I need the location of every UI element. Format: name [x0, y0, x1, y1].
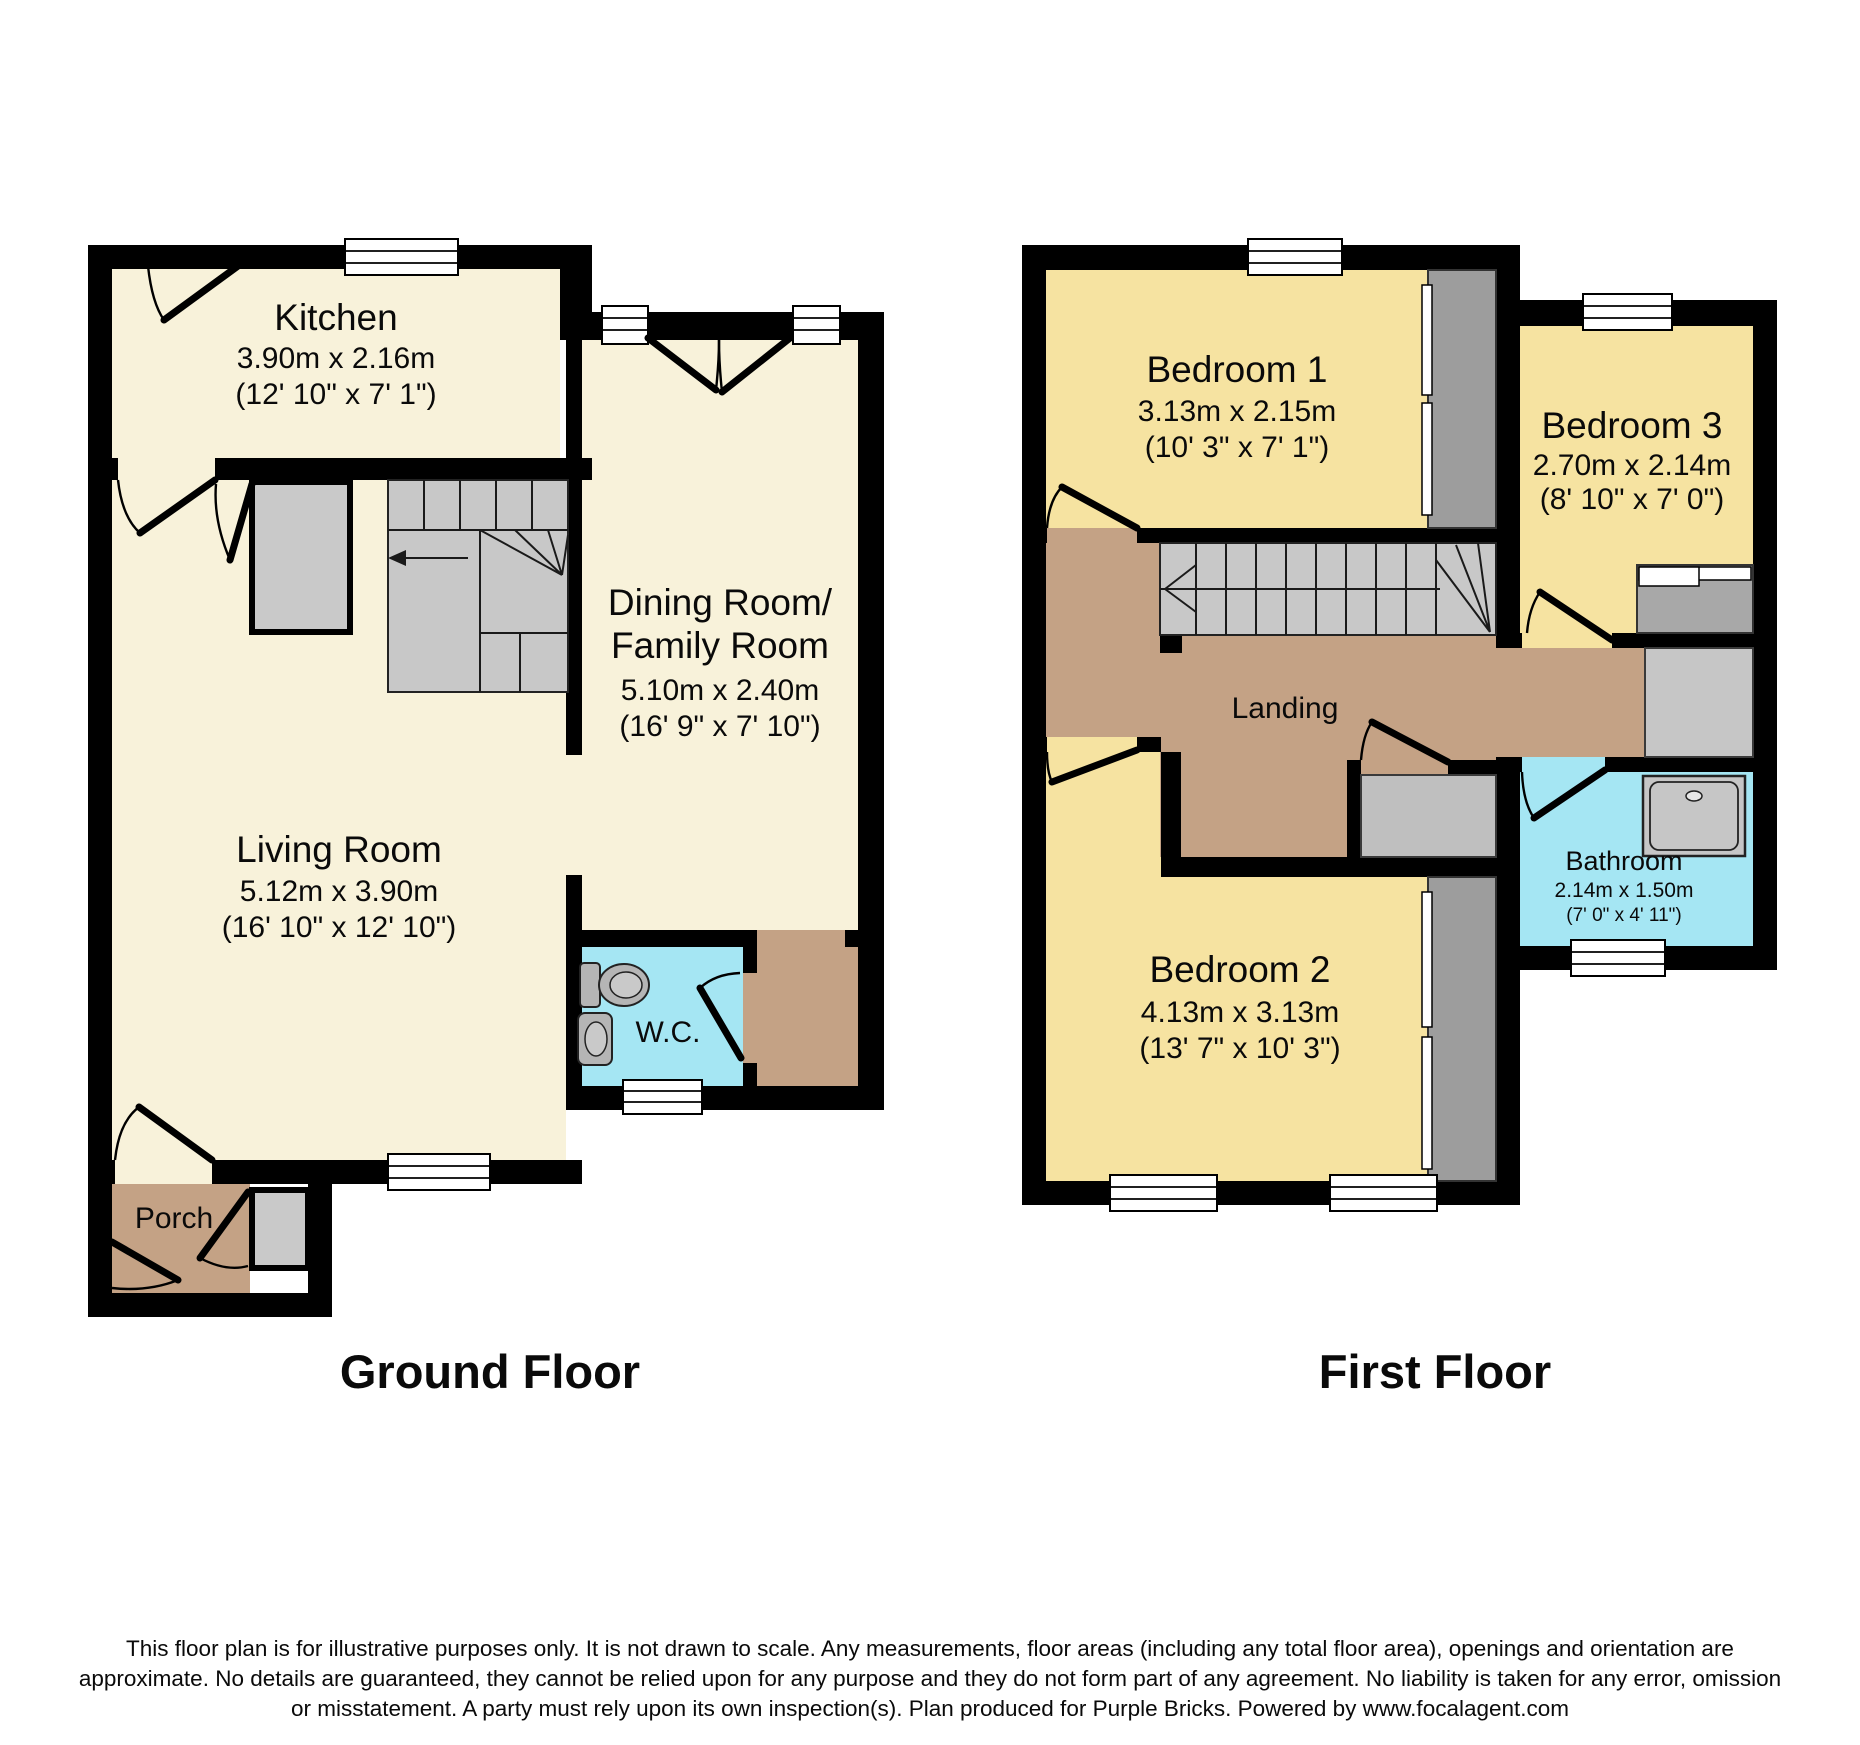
ground-floor-title: Ground Floor: [340, 1345, 640, 1398]
shower-icon: [1643, 776, 1745, 856]
bedroom1-label: Bedroom 1: [1147, 349, 1328, 390]
bedroom3-window-icon: [1583, 294, 1672, 330]
landing-label: Landing: [1232, 692, 1339, 725]
bedroom1-wardrobe: [1422, 270, 1496, 528]
bedroom3-dim-imperial: (8' 10" x 7' 0"): [1540, 483, 1725, 516]
bedroom2-floor-main: [1161, 877, 1428, 1181]
bedroom2-window-left-icon: [1110, 1175, 1217, 1211]
disclaimer: This floor plan is for illustrative purp…: [79, 1636, 1781, 1721]
bedroom3-cupboard: [1637, 565, 1753, 633]
disclaimer-line-2: approximate. No details are guaranteed, …: [79, 1666, 1781, 1691]
understairs-closet: [252, 482, 350, 632]
living-label: Living Room: [236, 829, 442, 870]
toilet-icon: [580, 963, 649, 1007]
dining-window-left-icon: [602, 306, 648, 344]
landing-floor-column: [1046, 543, 1160, 737]
bathroom-label: Bathroom: [1565, 846, 1682, 876]
airing-cupboard: [1361, 775, 1496, 857]
wc-label: W.C.: [636, 1016, 701, 1049]
ground-stairs-icon: [388, 480, 568, 692]
sink-icon: [578, 1013, 612, 1065]
bedroom2-floor-left: [1046, 752, 1161, 1181]
kitchen-label: Kitchen: [274, 297, 397, 338]
porch-label: Porch: [135, 1202, 213, 1235]
living-dining-opening: [566, 755, 582, 875]
dining-dim-metric: 5.10m x 2.40m: [621, 674, 819, 707]
living-window-icon: [388, 1154, 490, 1190]
floorplan-page: Kitchen 3.90m x 2.16m (12' 10" x 7' 1") …: [0, 0, 1860, 1745]
bedroom3-label: Bedroom 3: [1542, 405, 1723, 446]
landing-floor-extension: [1496, 648, 1645, 757]
dining-label-line2: Family Room: [611, 625, 829, 666]
bedroom1-window-icon: [1248, 239, 1342, 275]
porch-closet: [252, 1190, 308, 1268]
kitchen-window-icon: [345, 239, 458, 275]
living-dim-metric: 5.12m x 3.90m: [240, 875, 438, 908]
kitchen-dim-metric: 3.90m x 2.16m: [237, 342, 435, 375]
porch-floor: [112, 1184, 250, 1293]
ground-floor-plan: Kitchen 3.90m x 2.16m (12' 10" x 7' 1") …: [88, 239, 884, 1398]
dining-label-line1: Dining Room/: [608, 582, 833, 623]
landing-end-cupboard: [1645, 648, 1753, 757]
kitchen-dim-imperial: (12' 10" x 7' 1"): [235, 378, 436, 411]
bedroom3-dim-metric: 2.70m x 2.14m: [1533, 449, 1731, 482]
living-dim-imperial: (16' 10" x 12' 10"): [222, 911, 457, 944]
bedroom1-dim-imperial: (10' 3" x 7' 1"): [1145, 431, 1330, 464]
disclaimer-line-1: This floor plan is for illustrative purp…: [126, 1636, 1734, 1661]
bathroom-dim-metric: 2.14m x 1.50m: [1555, 879, 1694, 902]
disclaimer-line-3: or misstatement. A party must rely upon …: [291, 1696, 1569, 1721]
dining-window-right-icon: [793, 306, 840, 344]
dining-dim-imperial: (16' 9" x 7' 10"): [619, 710, 820, 743]
bathroom-dim-imperial: (7' 0" x 4' 11"): [1566, 905, 1681, 926]
bedroom2-label: Bedroom 2: [1150, 949, 1331, 990]
first-stairs-icon: [1160, 543, 1496, 635]
floorplan-drawing: Kitchen 3.90m x 2.16m (12' 10" x 7' 1") …: [0, 0, 1860, 1745]
first-floor-title: First Floor: [1319, 1345, 1551, 1398]
bedroom1-dim-metric: 3.13m x 2.15m: [1138, 395, 1336, 428]
first-floor-plan: Bedroom 1 3.13m x 2.15m (10' 3" x 7' 1")…: [1022, 239, 1777, 1398]
hall-floor: [757, 930, 858, 1086]
bedroom2-window-right-icon: [1330, 1175, 1437, 1211]
bathroom-window-icon: [1571, 940, 1665, 976]
wc-window-icon: [623, 1080, 702, 1114]
bedroom2-dim-imperial: (13' 7" x 10' 3"): [1139, 1032, 1340, 1065]
bedroom2-wardrobe: [1422, 877, 1496, 1181]
bedroom2-dim-metric: 4.13m x 3.13m: [1141, 996, 1339, 1029]
landing-floor-lower: [1160, 760, 1347, 857]
